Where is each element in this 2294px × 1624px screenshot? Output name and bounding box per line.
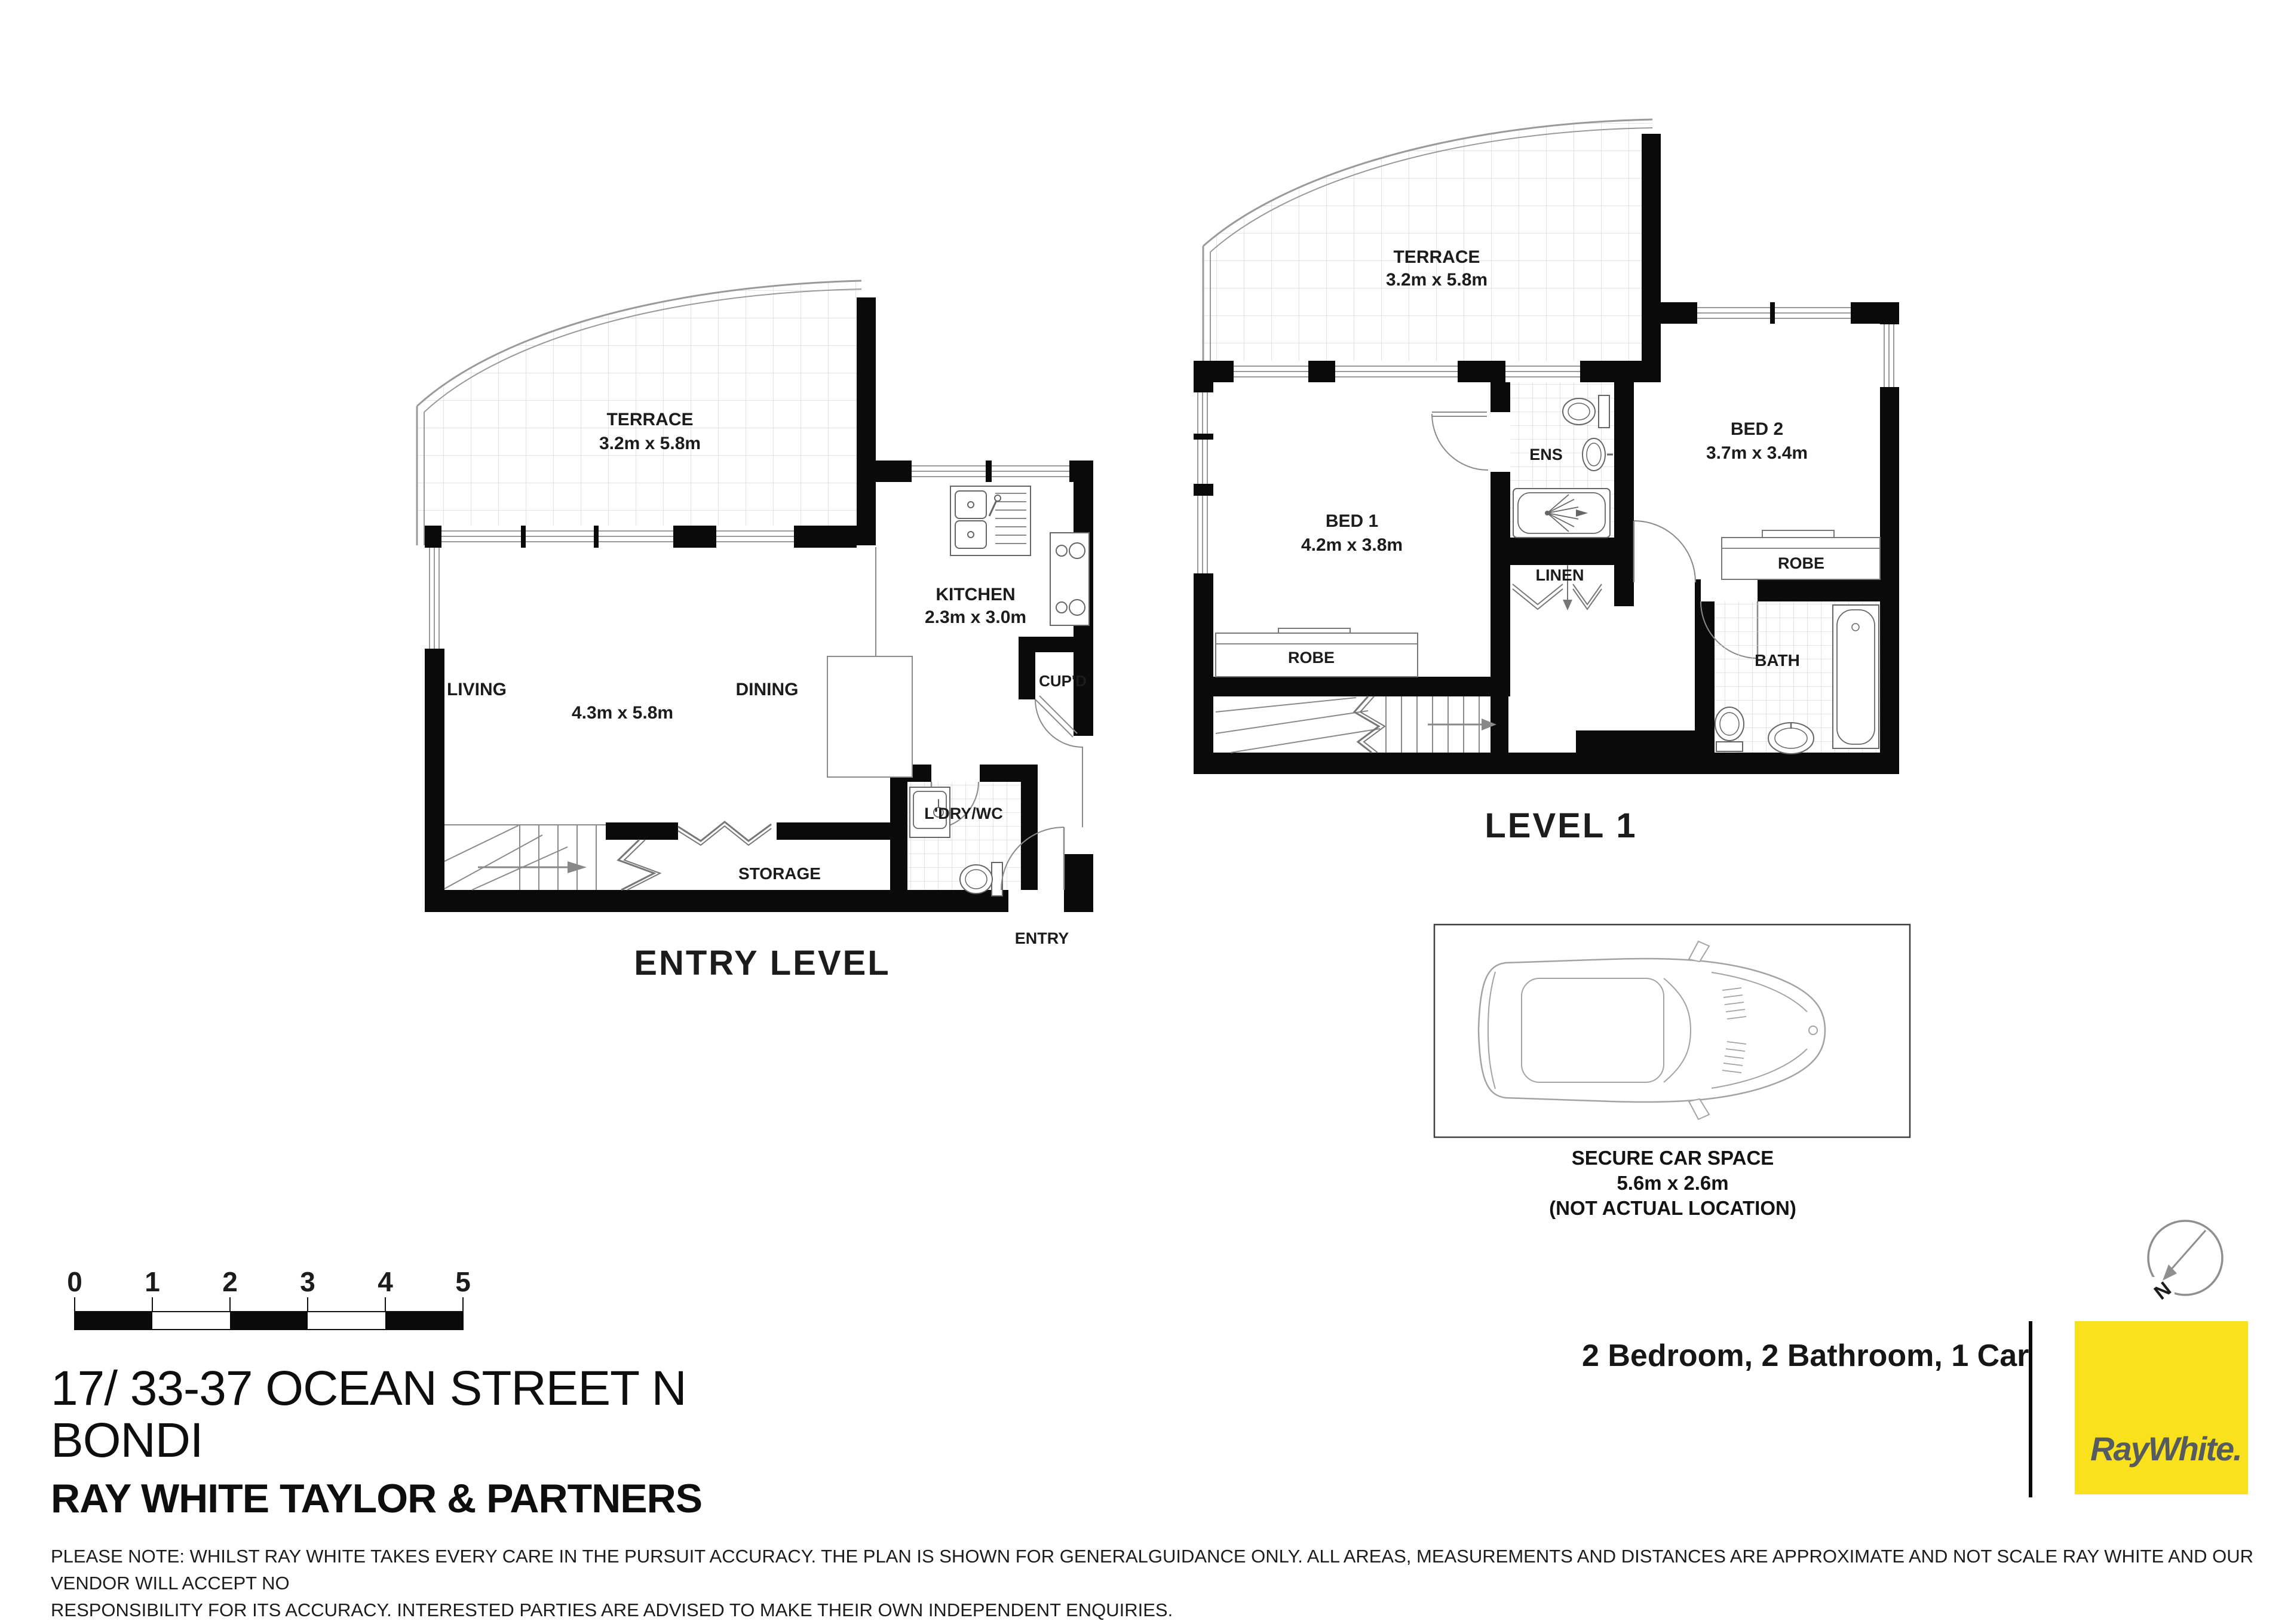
raywhite-logo-text: RayWhite. (2090, 1429, 2241, 1468)
entry-terrace-dims: 3.2m x 5.8m (599, 434, 701, 453)
address-line2: BONDI (51, 1415, 686, 1467)
bed1-robe-label: ROBE (1288, 649, 1335, 667)
scale-bar-segment (230, 1312, 308, 1330)
ens-toilet-icon (1563, 395, 1609, 428)
level-1-title: LEVEL 1 (1485, 806, 1637, 845)
level-1-floorplan: TERRACE 3.2m x 5.8m BED 1 4.2m x 3.8m BE… (1189, 96, 1942, 884)
scale-tick-4: 4 (378, 1266, 393, 1297)
entry-level-floorplan: TERRACE 3.2m x 5.8m KITCHEN 2.3m x 3.0m … (388, 263, 1135, 1069)
scale-tick-3: 3 (300, 1266, 315, 1297)
scale-bar: 0 1 2 3 4 5 (57, 1264, 475, 1347)
stove-icon (1050, 533, 1089, 625)
bath-basin-icon (1768, 723, 1814, 754)
l1-staircase-icon (1216, 696, 1496, 753)
bathtub-icon (1833, 605, 1879, 748)
linen-label: LINEN (1536, 566, 1584, 584)
entry-label: ENTRY (1015, 929, 1069, 947)
scale-bar-ticks (75, 1297, 463, 1312)
living-label: LIVING (447, 680, 507, 699)
car-space-diagram (1431, 921, 1915, 1142)
car-space-dims: 5.6m x 2.6m (1431, 1171, 1915, 1196)
entry-terrace-label: TERRACE (606, 410, 693, 429)
bed1-label: BED 1 (1326, 511, 1378, 531)
scale-tick-0: 0 (67, 1266, 82, 1297)
laundry-label: L'DRY/WC (924, 805, 1002, 822)
raywhite-logo: RayWhite. (2075, 1321, 2248, 1494)
bed2-door-icon (1634, 521, 1695, 582)
car-space-note: (NOT ACTUAL LOCATION) (1431, 1196, 1915, 1221)
bath-toilet-icon (1715, 707, 1744, 751)
bed2-dims: 3.7m x 3.4m (1706, 443, 1808, 463)
property-summary: 2 Bedroom, 2 Bathroom, 1 Car (1582, 1338, 2029, 1374)
l1-terrace-dims: 3.2m x 5.8m (1386, 270, 1488, 290)
kitchen-label: KITCHEN (936, 585, 1015, 604)
entry-level-title: ENTRY LEVEL (634, 944, 890, 983)
scale-bar-segment (75, 1312, 152, 1330)
property-address: 17/ 33-37 OCEAN STREET N BONDI (51, 1363, 686, 1467)
car-space-caption: SECURE CAR SPACE 5.6m x 2.6m (NOT ACTUAL… (1431, 1146, 1915, 1221)
kitchen-bench (827, 547, 912, 777)
car-space-title: SECURE CAR SPACE (1431, 1146, 1915, 1171)
scale-tick-1: 1 (145, 1266, 160, 1297)
kitchen-dims: 2.3m x 3.0m (925, 607, 1026, 627)
toilet-icon (960, 862, 1002, 896)
disclaimer: PLEASE NOTE: WHILST RAY WHITE TAKES EVER… (51, 1543, 2279, 1624)
living-dining-dims: 4.3m x 5.8m (572, 703, 673, 723)
l1-terrace-label: TERRACE (1393, 247, 1480, 267)
bath-label: BATH (1755, 651, 1800, 670)
bed1-dims: 4.2m x 3.8m (1301, 535, 1403, 555)
cupboard-label: CUP'D (1039, 672, 1087, 690)
car-icon (1479, 941, 1825, 1119)
storage-label: STORAGE (738, 864, 821, 883)
scale-bar-numbers: 0 1 2 3 4 5 (67, 1266, 471, 1297)
scale-tick-5: 5 (455, 1266, 471, 1297)
scale-bar-segment (385, 1312, 463, 1330)
ens-label: ENS (1529, 446, 1563, 463)
disclaimer-line1: PLEASE NOTE: WHILST RAY WHITE TAKES EVER… (51, 1543, 2279, 1597)
bed2-robe-label: ROBE (1778, 554, 1824, 572)
disclaimer-line2: RESPONSIBILITY FOR ITS ACCURACY. INTERES… (51, 1597, 2279, 1624)
footer-divider (2029, 1321, 2032, 1497)
bed2-label: BED 2 (1731, 419, 1783, 439)
north-compass-icon: N (2132, 1208, 2239, 1315)
shower-bath-icon (1513, 489, 1610, 538)
storage-opening (678, 822, 771, 845)
dining-label: DINING (736, 680, 799, 699)
kitchen-sink-icon (950, 486, 1031, 555)
address-line1: 17/ 33-37 OCEAN STREET N (51, 1363, 686, 1415)
scale-tick-2: 2 (222, 1266, 238, 1297)
agency-name: RAY WHITE TAYLOR & PARTNERS (51, 1475, 702, 1522)
